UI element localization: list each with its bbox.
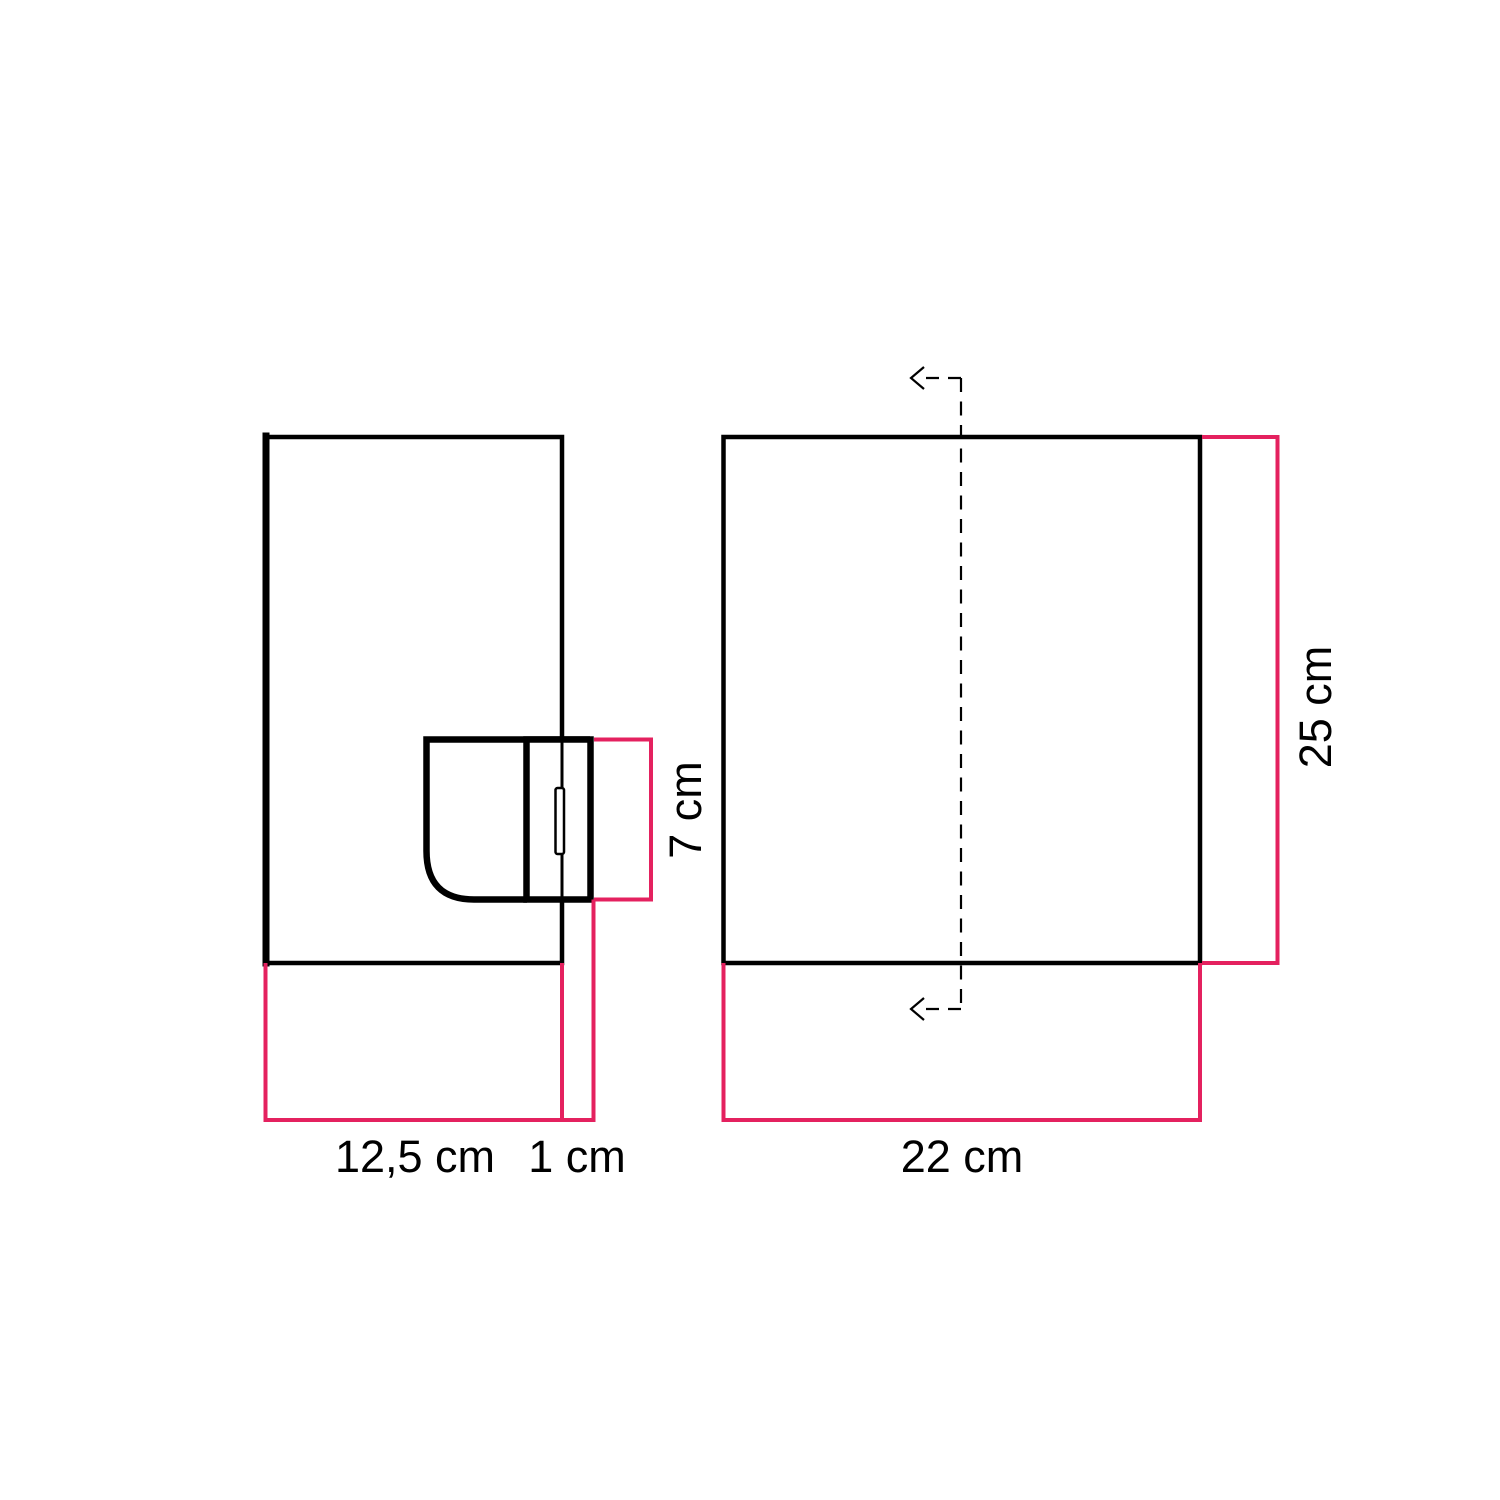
cable-exit-top-arrow-icon: [911, 367, 924, 389]
cable-exit-bottom-arrow-icon: [911, 998, 924, 1020]
dim-bracket-holder-height: [594, 740, 651, 900]
dim-label-holder-height: 7 cm: [660, 761, 711, 859]
side-view: 12,5 cm 1 cm 7 cm: [264, 436, 712, 1182]
dim-label-side-width: 12,5 cm: [335, 1131, 495, 1182]
plate-fixing-slot: [556, 788, 565, 854]
lampshade-dimension-diagram: 12,5 cm 1 cm 7 cm 22 cm 25 cm: [0, 0, 1500, 1500]
dimension-drawing-page: 12,5 cm 1 cm 7 cm 22 cm 25 cm: [0, 0, 1500, 1500]
dim-bracket-front-height: [1202, 437, 1278, 963]
dim-label-front-width: 22 cm: [901, 1131, 1024, 1182]
dim-label-front-height: 25 cm: [1290, 646, 1341, 769]
front-view: 22 cm 25 cm: [722, 367, 1342, 1182]
dim-label-plate-depth: 1 cm: [528, 1131, 626, 1182]
